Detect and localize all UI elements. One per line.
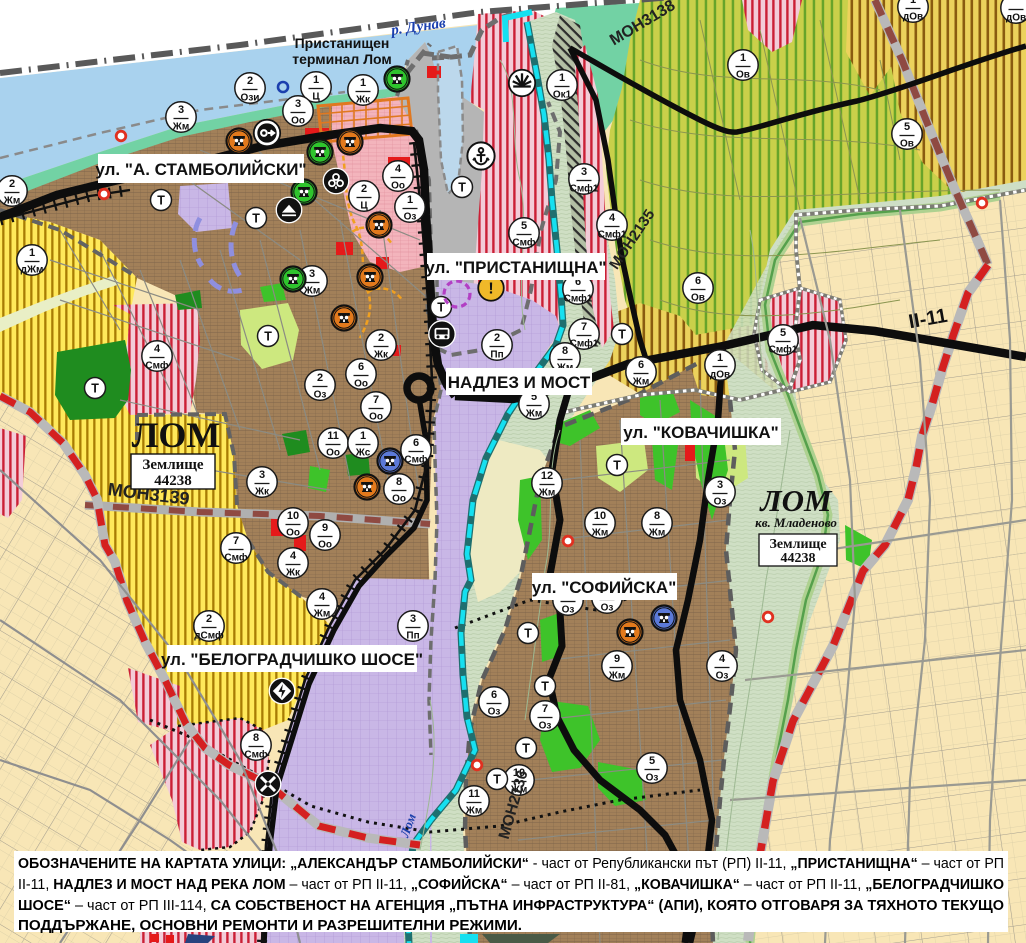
svg-text:3: 3 xyxy=(295,98,301,110)
svg-text:Жс: Жс xyxy=(355,448,371,459)
svg-text:ул. "А. СТАМБОЛИЙСКИ": ул. "А. СТАМБОЛИЙСКИ" xyxy=(95,160,306,179)
svg-text:5: 5 xyxy=(904,121,910,133)
svg-text:Землище: Землище xyxy=(142,457,204,473)
svg-text:5: 5 xyxy=(649,755,655,767)
svg-text:Жм: Жм xyxy=(648,528,665,539)
svg-text:4: 4 xyxy=(395,163,402,175)
svg-text:Оо: Оо xyxy=(326,448,340,459)
svg-text:Ов: Ов xyxy=(691,293,705,304)
svg-text:ЛОМ: ЛОМ xyxy=(132,415,221,455)
svg-text:Смф: Смф xyxy=(512,237,535,249)
svg-text:1: 1 xyxy=(740,52,746,64)
svg-text:Жм: Жм xyxy=(608,671,625,682)
svg-text:Оз: Оз xyxy=(646,773,659,784)
svg-text:Оо: Оо xyxy=(318,540,332,551)
svg-text:Жм: Жм xyxy=(525,409,542,420)
svg-text:Землище: Землище xyxy=(769,537,826,552)
svg-text:4: 4 xyxy=(719,653,726,665)
svg-text:Оз: Оз xyxy=(314,390,327,401)
svg-text:1: 1 xyxy=(360,430,366,442)
svg-text:6: 6 xyxy=(695,275,701,287)
svg-text:7: 7 xyxy=(542,703,548,715)
svg-text:Жм: Жм xyxy=(3,196,20,207)
svg-text:ул. "БЕЛОГРАДЧИШКО ШОСЕ": ул. "БЕЛОГРАДЧИШКО ШОСЕ" xyxy=(161,650,423,669)
svg-text:Жм: Жм xyxy=(591,528,608,539)
svg-text:4: 4 xyxy=(319,591,326,603)
svg-text:дОв: дОв xyxy=(1006,13,1026,24)
svg-text:6: 6 xyxy=(413,437,419,449)
svg-text:кв. Младеново: кв. Младеново xyxy=(755,515,837,530)
svg-text:Смф: Смф xyxy=(224,552,247,564)
svg-text:Смф1: Смф1 xyxy=(769,344,798,356)
svg-text:9: 9 xyxy=(322,522,328,534)
svg-text:Смф1: Смф1 xyxy=(564,293,593,305)
svg-text:дОв: дОв xyxy=(710,370,730,381)
svg-text:Жм: Жм xyxy=(313,609,330,620)
svg-text:Смф: Смф xyxy=(145,360,168,372)
svg-text:1: 1 xyxy=(407,194,413,206)
svg-text:1: 1 xyxy=(910,0,916,6)
svg-text:Жм: Жм xyxy=(172,122,189,133)
svg-text:1: 1 xyxy=(313,74,319,86)
svg-text:2: 2 xyxy=(317,372,323,384)
svg-text:4: 4 xyxy=(154,343,161,355)
svg-text:Смф1: Смф1 xyxy=(570,183,599,195)
svg-text:Пристанищен: Пристанищен xyxy=(295,35,390,51)
svg-text:3: 3 xyxy=(259,469,265,481)
svg-text:НАДЛЕЗ И МОСТ: НАДЛЕЗ И МОСТ xyxy=(448,373,591,392)
svg-text:5: 5 xyxy=(780,327,786,339)
svg-text:4: 4 xyxy=(609,212,616,224)
svg-text:3: 3 xyxy=(178,104,184,116)
svg-text:Ов: Ов xyxy=(900,139,914,150)
svg-text:9: 9 xyxy=(614,653,620,665)
svg-text:Оз: Оз xyxy=(716,671,729,682)
svg-text:2: 2 xyxy=(9,178,15,190)
svg-text:Ози: Ози xyxy=(241,93,260,104)
svg-text:Оз: Оз xyxy=(404,212,417,223)
svg-text:Оо: Оо xyxy=(291,116,305,127)
svg-text:ул. "КОВАЧИШКА": ул. "КОВАЧИШКА" xyxy=(623,423,779,442)
svg-text:5: 5 xyxy=(521,220,527,232)
svg-text:3: 3 xyxy=(581,166,587,178)
svg-text:7: 7 xyxy=(233,535,239,547)
svg-text:Смф: Смф xyxy=(244,749,267,761)
svg-text:3: 3 xyxy=(717,479,723,491)
svg-text:Жк: Жк xyxy=(355,95,371,106)
svg-text:Смф: Смф xyxy=(404,454,427,466)
svg-text:1: 1 xyxy=(559,72,565,84)
svg-text:3: 3 xyxy=(309,268,315,280)
svg-text:ОБОЗНАЧЕНИТЕ НА КАРТАТА УЛИЦИ:: ОБОЗНАЧЕНИТЕ НА КАРТАТА УЛИЦИ: „АЛЕКСАНД… xyxy=(18,854,1004,872)
svg-text:2: 2 xyxy=(494,332,500,344)
svg-text:12: 12 xyxy=(541,470,553,482)
svg-text:11: 11 xyxy=(468,788,480,800)
svg-text:терминал Лом: терминал Лом xyxy=(292,51,392,67)
svg-text:6: 6 xyxy=(638,359,644,371)
svg-text:Жм: Жм xyxy=(303,286,320,297)
svg-text:7: 7 xyxy=(581,321,587,333)
svg-text:44238: 44238 xyxy=(154,473,192,489)
svg-text:1: 1 xyxy=(717,352,723,364)
svg-text:10: 10 xyxy=(594,510,606,522)
svg-text:дОв: дОв xyxy=(903,12,923,23)
svg-text:ПОДДЪРЖАНЕ, ОСНОВНИ РЕМОНТИ И: ПОДДЪРЖАНЕ, ОСНОВНИ РЕМОНТИ И РАЗРЕШИТЕЛ… xyxy=(18,917,522,934)
svg-text:10: 10 xyxy=(287,510,299,522)
svg-text:Ов: Ов xyxy=(736,70,750,81)
svg-text:дЖм: дЖм xyxy=(21,265,44,276)
svg-text:ШОСЕ“ – част от РП III-114, СА: ШОСЕ“ – част от РП III-114, СА СОБСТВЕНО… xyxy=(18,897,1004,914)
svg-text:Жм: Жм xyxy=(465,806,482,817)
svg-text:ЛОМ: ЛОМ xyxy=(758,483,833,518)
svg-text:Оо: Оо xyxy=(369,412,383,423)
svg-text:2: 2 xyxy=(361,183,367,195)
svg-text:Жк: Жк xyxy=(254,487,270,498)
svg-text:Ц: Ц xyxy=(360,201,368,212)
svg-text:Оо: Оо xyxy=(391,181,405,192)
svg-text:Оо: Оо xyxy=(354,379,368,390)
svg-text:11: 11 xyxy=(327,430,339,442)
svg-text:Оо: Оо xyxy=(286,528,300,539)
svg-text:8: 8 xyxy=(253,732,259,744)
svg-text:ул. "СОФИЙСКА": ул. "СОФИЙСКА" xyxy=(532,578,677,597)
svg-text:дСмф: дСмф xyxy=(194,630,224,642)
svg-text:Жк: Жк xyxy=(373,350,389,361)
svg-text:7: 7 xyxy=(373,394,379,406)
svg-text:Оз: Оз xyxy=(601,603,614,614)
svg-text:Оо: Оо xyxy=(392,494,406,505)
svg-text:!: ! xyxy=(488,280,493,297)
svg-text:3: 3 xyxy=(410,613,416,625)
svg-text:1: 1 xyxy=(360,77,366,89)
svg-text:8: 8 xyxy=(396,476,402,488)
svg-text:44238: 44238 xyxy=(781,551,816,566)
svg-text:Жм: Жм xyxy=(538,488,555,499)
svg-text:Оз: Оз xyxy=(539,721,552,732)
svg-text:Оз: Оз xyxy=(562,605,575,616)
svg-text:8: 8 xyxy=(562,345,568,357)
svg-text:Ц: Ц xyxy=(312,92,320,103)
svg-text:Пп: Пп xyxy=(406,631,419,642)
svg-text:Оз: Оз xyxy=(714,497,727,508)
svg-text:Оз: Оз xyxy=(488,707,501,718)
svg-text:8: 8 xyxy=(654,510,660,522)
svg-text:II-11, НАДЛЕЗ И МОСТ НАД РЕКА: II-11, НАДЛЕЗ И МОСТ НАД РЕКА ЛОМ – част… xyxy=(18,875,1004,893)
svg-text:Пп: Пп xyxy=(490,350,503,361)
svg-text:2: 2 xyxy=(206,613,212,625)
svg-text:ул. "ПРИСТАНИЩНА": ул. "ПРИСТАНИЩНА" xyxy=(425,258,606,277)
svg-text:4: 4 xyxy=(290,550,297,562)
svg-text:Жк: Жк xyxy=(285,568,301,579)
svg-text:Ок1: Ок1 xyxy=(553,90,572,101)
svg-text:6: 6 xyxy=(491,689,497,701)
svg-text:1: 1 xyxy=(29,247,35,259)
svg-text:Жм: Жм xyxy=(632,377,649,388)
svg-text:6: 6 xyxy=(358,361,364,373)
svg-text:2: 2 xyxy=(378,332,384,344)
svg-text:2: 2 xyxy=(247,75,253,87)
